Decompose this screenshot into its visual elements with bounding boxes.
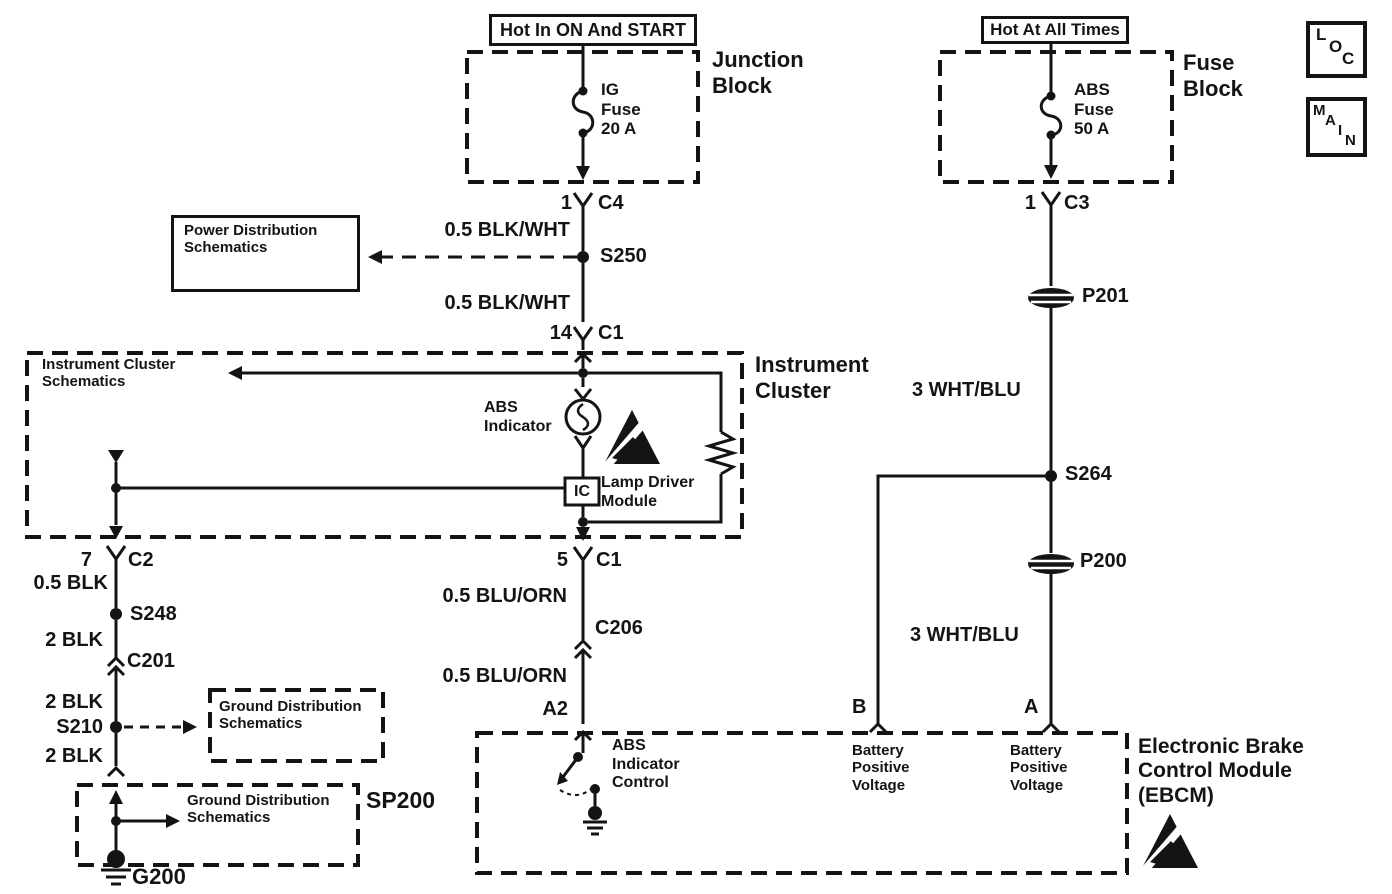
lamp-filament bbox=[578, 404, 588, 430]
connector-c3-pin: 1 bbox=[1002, 192, 1036, 215]
ig-fuse-label: IG Fuse 20 A bbox=[601, 80, 641, 139]
ic-chip-label: IC bbox=[565, 479, 599, 504]
connector-c1-out-pin: 5 bbox=[532, 549, 568, 572]
connector-c1-in-fork bbox=[574, 327, 592, 340]
wire-label-whtblu-2: 3 WHT/BLU bbox=[910, 624, 1019, 647]
connector-c4-fork bbox=[574, 193, 592, 206]
main-letter: A bbox=[1325, 112, 1336, 129]
ebcm-pin-a2: A2 bbox=[526, 698, 568, 721]
splice-s248-label: S248 bbox=[130, 603, 177, 626]
wire-label-bluorn-1: 0.5 BLU/ORN bbox=[405, 585, 567, 608]
ebcm-b-entry-chevron bbox=[870, 724, 886, 732]
splice-s250-dot bbox=[577, 251, 589, 263]
connector-c206-label: C206 bbox=[595, 617, 643, 640]
wire-label-whtblu-1: 3 WHT/BLU bbox=[912, 379, 1021, 402]
connector-c4-pin: 1 bbox=[536, 192, 572, 215]
lamp-driver-module-label: Lamp Driver Module bbox=[601, 474, 694, 511]
connector-c201-label: C201 bbox=[127, 650, 175, 673]
resistor-top-link bbox=[583, 373, 721, 432]
connector-c1-in-label: C1 bbox=[598, 322, 624, 345]
battery-positive-voltage-b: Battery Positive Voltage bbox=[852, 742, 910, 794]
fuse-block-exit-arrow bbox=[1044, 165, 1058, 179]
grommet-p200 bbox=[1028, 554, 1074, 574]
sp200-up-arrow bbox=[109, 790, 123, 804]
ground-distribution-label-2: Ground Distribution Schematics bbox=[187, 792, 329, 827]
wire-label-2blk-a: 2 BLK bbox=[10, 629, 103, 652]
main-letter: M bbox=[1313, 102, 1326, 119]
splice-s264-label: S264 bbox=[1065, 463, 1112, 486]
g200-ground-symbol bbox=[101, 870, 131, 884]
ig-fuse-symbol bbox=[573, 91, 593, 133]
instrument-cluster-label: Instrument Cluster bbox=[755, 352, 869, 403]
fuse-block-label: Fuse Block bbox=[1183, 50, 1243, 101]
wire-label-bluorn-2: 0.5 BLU/ORN bbox=[405, 665, 567, 688]
grommet-p201-label: P201 bbox=[1082, 285, 1129, 308]
resistor-symbol bbox=[709, 432, 733, 474]
cluster-feed-triangle bbox=[108, 450, 124, 463]
cluster-ref-arrowhead bbox=[228, 366, 242, 380]
main-letter: N bbox=[1345, 132, 1356, 149]
hot-in-on-start-box: Hot In ON And START bbox=[489, 14, 697, 46]
s250-ref-arrowhead bbox=[368, 250, 382, 264]
switch-ground-symbol bbox=[583, 822, 607, 834]
ebcm-pin-b: B bbox=[852, 696, 866, 719]
wire-label-2blk-c: 2 BLK bbox=[10, 745, 103, 768]
connector-c1-out-label: C1 bbox=[596, 549, 622, 572]
junction-block-label: Junction Block bbox=[712, 47, 804, 98]
splice-s264-dot bbox=[1045, 470, 1057, 482]
main-tag: M A I N bbox=[1306, 97, 1367, 157]
wire-label-blkwht-1: 0.5 BLK/WHT bbox=[408, 219, 570, 242]
main-letter: I bbox=[1338, 122, 1342, 139]
connector-c4-label: C4 bbox=[598, 192, 624, 215]
connector-c2-pin: 7 bbox=[62, 549, 92, 572]
abs-fuse-label: ABS Fuse 50 A bbox=[1074, 80, 1114, 139]
grommet-p201 bbox=[1028, 288, 1074, 308]
connector-c1-out-fork bbox=[574, 547, 592, 560]
esd-icon-ebcm bbox=[1142, 814, 1198, 872]
splice-sp200-label: SP200 bbox=[366, 787, 435, 814]
abs-indicator-control-switch bbox=[557, 752, 607, 834]
battery-positive-voltage-a: Battery Positive Voltage bbox=[1010, 742, 1068, 794]
grommet-p200-label: P200 bbox=[1080, 550, 1127, 573]
connector-c3-label: C3 bbox=[1064, 192, 1090, 215]
connector-c1-in-pin: 14 bbox=[524, 322, 572, 345]
loc-letter: O bbox=[1329, 37, 1342, 57]
ground-distribution-label-1: Ground Distribution Schematics bbox=[219, 698, 361, 733]
sp200-entry-chevron bbox=[108, 768, 124, 776]
abs-fuse-symbol bbox=[1041, 96, 1061, 135]
splice-s248-dot bbox=[110, 608, 122, 620]
power-distribution-label: Power Distribution Schematics bbox=[184, 222, 317, 257]
sp200-ref-arrowhead bbox=[166, 814, 180, 828]
component-boxes bbox=[27, 52, 1172, 873]
loc-letter: C bbox=[1342, 49, 1354, 69]
instrument-cluster-ref-label: Instrument Cluster Schematics bbox=[42, 356, 175, 391]
b-branch-wire bbox=[878, 476, 1045, 724]
ebcm-label: Electronic Brake Control Module (EBCM) bbox=[1138, 735, 1304, 808]
wire-label-2blk-b: 2 BLK bbox=[10, 691, 103, 714]
ebcm-pin-a: A bbox=[1024, 696, 1038, 719]
loc-letter: L bbox=[1316, 25, 1326, 45]
abs-indicator-control-label: ABS Indicator Control bbox=[612, 737, 680, 793]
s210-ref-arrowhead bbox=[183, 720, 197, 734]
center-circuit-wire bbox=[242, 42, 733, 753]
ebcm-a-entry-chevron bbox=[1043, 724, 1059, 732]
connector-c2-fork bbox=[107, 546, 125, 559]
ground-g200-label: G200 bbox=[132, 864, 186, 890]
splice-s250-label: S250 bbox=[600, 245, 647, 268]
esd-icon-cluster bbox=[604, 410, 660, 468]
wiring-diagram: Hot In ON And START Hot At All Times L O… bbox=[0, 0, 1392, 894]
connector-c2-label: C2 bbox=[128, 549, 154, 572]
splice-s210-label: S210 bbox=[20, 716, 103, 739]
splice-s210-dot bbox=[110, 721, 122, 733]
wire-label-05blk: 0.5 BLK bbox=[10, 572, 108, 595]
abs-indicator-label: ABS Indicator bbox=[484, 399, 552, 436]
junction-exit-arrow bbox=[576, 166, 590, 180]
connector-c3-fork bbox=[1042, 192, 1060, 205]
g200-dot bbox=[107, 850, 125, 868]
loc-tag: L O C bbox=[1306, 21, 1367, 78]
wire-label-blkwht-2: 0.5 BLK/WHT bbox=[408, 292, 570, 315]
hot-at-all-times-box: Hot At All Times bbox=[981, 16, 1129, 44]
